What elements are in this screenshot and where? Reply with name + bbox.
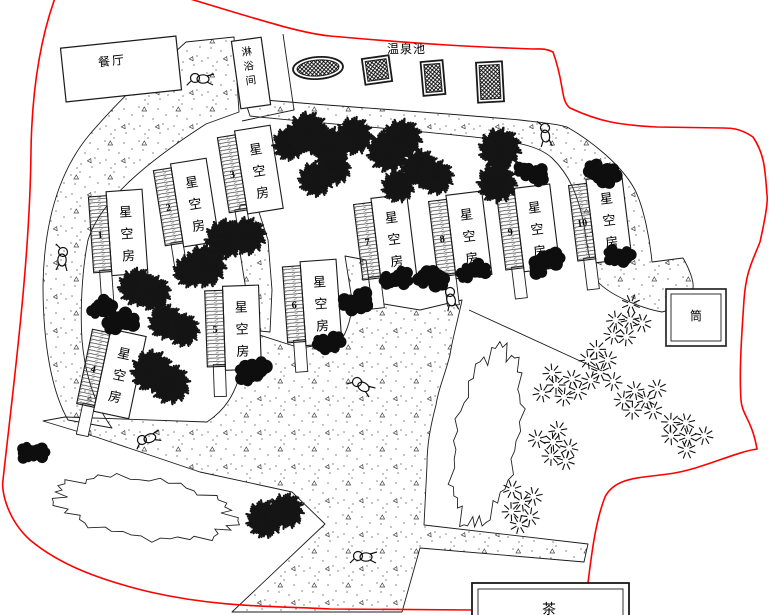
restaurant-label: 餐厅	[97, 54, 126, 69]
room-label-char: 星	[235, 299, 249, 314]
pool-rect	[421, 60, 446, 96]
hedge-blob	[448, 342, 525, 527]
site-plan: 1星空房2星空房3星空房4星空房5星空房6星空房7星空房8星空房9星空房10星空…	[0, 0, 776, 615]
room-number: 5	[212, 325, 217, 336]
room-label-char: 星	[184, 174, 199, 191]
room-label-char: 空	[387, 231, 402, 247]
shrub-icon	[23, 437, 54, 467]
room-label-char: 星	[527, 199, 542, 215]
room-label-char: 星	[248, 141, 263, 158]
room-number: 6	[291, 300, 297, 311]
room-label-char: 空	[530, 221, 545, 237]
hot-spring-pools	[292, 55, 504, 102]
room-label-char: 房	[316, 318, 330, 334]
restaurant-building	[60, 36, 181, 102]
room-label-char: 空	[120, 226, 134, 242]
bush-icon	[521, 410, 590, 478]
pool-rect	[362, 55, 392, 85]
room-label-char: 房	[191, 217, 206, 234]
room-label-char: 星	[313, 274, 327, 290]
room-walkway-stem	[213, 364, 226, 396]
pool-rect	[476, 61, 504, 102]
room-label-char: 星	[599, 190, 614, 206]
room-label-char: 星	[119, 204, 133, 220]
room-label-char: 空	[252, 163, 267, 180]
room-label-char: 房	[255, 184, 270, 201]
room-label-char: 空	[314, 296, 328, 312]
room-number: 1	[97, 230, 103, 241]
room-label-char: 房	[236, 343, 250, 358]
bush-icon	[568, 335, 629, 402]
bottom-partial-label: 茶	[542, 604, 556, 615]
room-label-char: 空	[602, 212, 617, 228]
tube-label: 筒	[690, 310, 702, 322]
site-plan-svg: 1星空房2星空房3星空房4星空房5星空房6星空房7星空房8星空房9星空房10星空…	[0, 0, 776, 615]
room-label-char: 空	[235, 321, 249, 336]
hot-spring-label: 温泉池	[387, 43, 426, 55]
room-label-char: 房	[122, 248, 136, 264]
hedge-blob	[52, 474, 239, 543]
bush-icon	[610, 373, 674, 429]
pool-ellipse	[292, 55, 343, 80]
bush-icon	[533, 364, 587, 407]
room-number: 10	[577, 218, 588, 230]
room-label-char: 空	[462, 228, 477, 244]
room-label-char: 星	[459, 206, 474, 222]
room-label-char: 空	[188, 196, 203, 213]
room-label-char: 星	[384, 209, 399, 225]
